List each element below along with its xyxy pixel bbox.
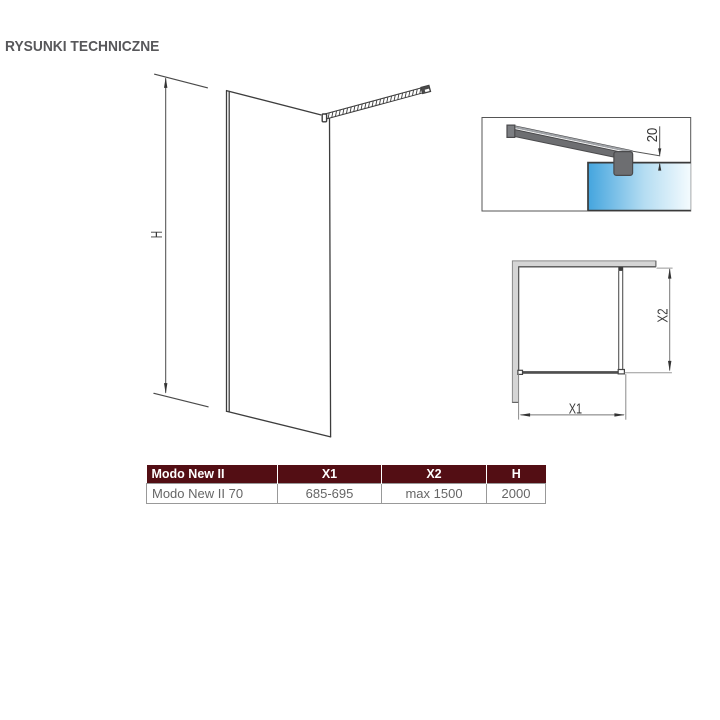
svg-text:20: 20 [643, 128, 660, 143]
svg-text:H: H [148, 231, 166, 238]
svg-text:X1: X1 [569, 400, 582, 417]
svg-text:X2: X2 [654, 308, 671, 322]
